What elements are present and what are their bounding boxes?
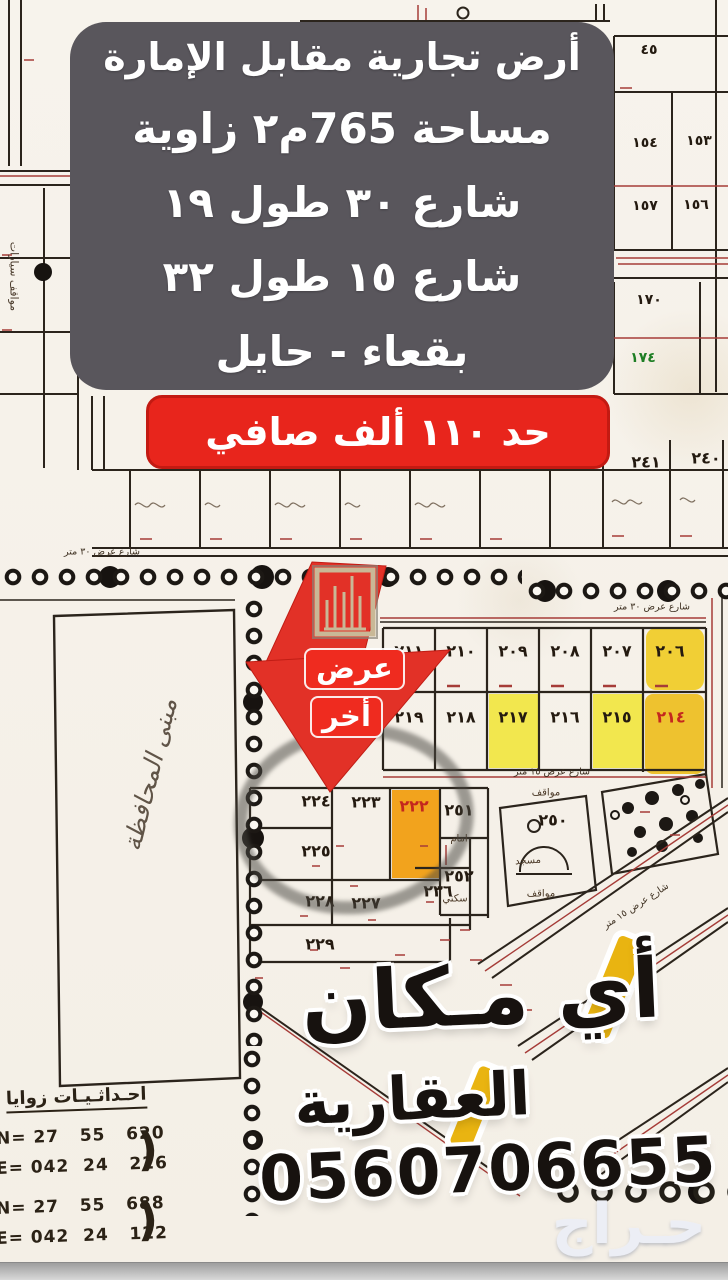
ad-text-box: أرض تجارية مقابل الإمارة مساحة 765م٢ زاو… — [70, 22, 614, 390]
listing-image: ٤٥ ١٥٤ ١٥٣ ١٥٧ ١٥٦ ١٧٠ ١٧٤ ٢٤١ ٢٤٠ ٢١١ ٢… — [0, 0, 728, 1280]
haraj-watermark: حـراج — [552, 1192, 706, 1257]
offer-tag-word1: عرض — [306, 650, 403, 688]
offer-tag-word2: أخر — [312, 698, 381, 736]
price-banner: حد ١١٠ ألف صافي — [146, 395, 610, 469]
ad-line-title: أرض تجارية مقابل الإمارة — [84, 34, 600, 82]
ad-line-location: بقعاء - حايل — [84, 326, 600, 379]
price-text: حد ١١٠ ألف صافي — [205, 410, 551, 454]
ad-line-area: مساحة 765م٢ زاوية — [84, 103, 600, 156]
ad-line-street15: شارع ١٥ طول ٣٢ — [84, 251, 600, 304]
ad-line-street30: شارع ٣٠ طول ١٩ — [84, 177, 600, 230]
agency-name-line2: العقارية — [246, 1062, 578, 1136]
agency-name-line1: أي مـكان — [236, 946, 725, 1049]
bottom-gray-strip — [0, 1262, 728, 1280]
